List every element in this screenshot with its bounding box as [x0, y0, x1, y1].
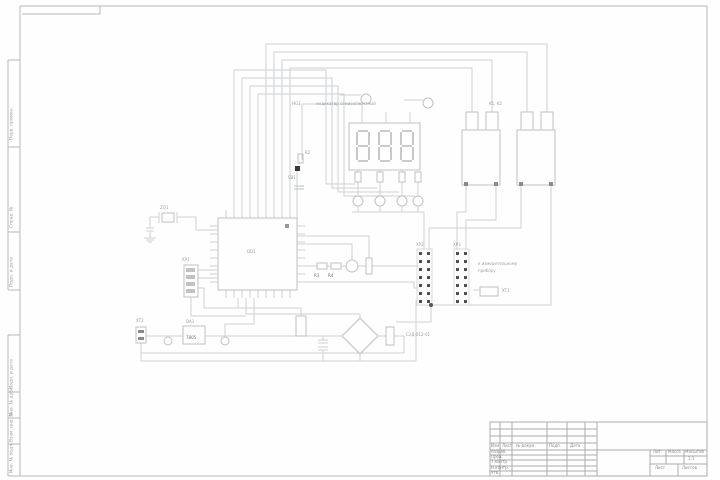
display-note: индикатор семисегментный	[316, 102, 376, 106]
capacitor	[164, 337, 172, 345]
resistor	[331, 263, 341, 269]
margin-label-vzam-inv: Взам. инв. №	[9, 412, 13, 442]
part-number-note: С2Д-012-01	[406, 333, 430, 337]
junction-dot	[429, 303, 433, 307]
relay-label: K1, K2	[489, 102, 502, 106]
display-designator: HG1	[292, 102, 301, 106]
terminal-xt2	[136, 327, 146, 343]
schematic-wires	[141, 44, 551, 361]
terminal-xt2-label: XT2	[136, 319, 144, 323]
transistor	[375, 196, 385, 206]
crystal-label: ZQ1	[160, 206, 168, 210]
resistor	[317, 263, 327, 269]
tb-col-dokum: № докум.	[516, 444, 536, 448]
transistor	[353, 196, 363, 206]
tb-sheets: Листов	[682, 466, 697, 470]
component-outlines	[136, 94, 555, 354]
resistor	[366, 258, 372, 274]
schematic-graphics	[0, 0, 720, 480]
display-digit-segments	[357, 131, 413, 161]
fuse	[296, 316, 306, 336]
button-mark	[295, 166, 300, 171]
margin-label-podp-data-2: Подп. и дата	[9, 359, 13, 389]
button-sb1-label: SB1	[288, 176, 296, 180]
note-to-device-1: к измерительному	[478, 262, 517, 266]
transistor	[413, 196, 423, 206]
margin-label-sprav-no: Справ. №	[9, 207, 13, 228]
note-to-device-2: прибору	[478, 269, 496, 273]
regulator-designator: DA1	[186, 320, 194, 324]
tb-massa: Масса	[668, 450, 681, 454]
tb-col-izm: Изм.	[491, 444, 500, 448]
tb-row-nkontr: Н.контр.	[491, 466, 509, 470]
margin-label-inv-podl: Инв. № подл.	[9, 443, 13, 473]
tb-col-list: Лист	[502, 444, 512, 448]
crystal	[162, 213, 174, 222]
tb-sheet: Лист	[655, 466, 665, 470]
tb-lit: Лит.	[653, 450, 662, 454]
tb-col-data: Дата	[570, 444, 580, 448]
resistor-r3-label: R3	[314, 274, 319, 278]
tb-row-prov: Пров.	[491, 455, 503, 459]
regulator-part: 7805	[186, 336, 196, 340]
tb-row-tkontr: Т.контр.	[491, 460, 508, 464]
resistor-r4-label: R4	[328, 274, 333, 278]
tb-row-utv: Утв.	[491, 471, 499, 475]
tb-col-podp: Подп.	[549, 444, 561, 448]
frame-lines	[8, 6, 707, 476]
tb-masshtab: Масштаб	[685, 450, 704, 454]
varistor	[386, 327, 394, 345]
tb-scale-value: 1:1	[688, 457, 694, 461]
terminal-xt1-label: XT1	[502, 289, 510, 293]
relay2-body	[517, 130, 555, 185]
relay1-body	[462, 130, 500, 185]
mcu-designator: DD1	[247, 250, 256, 254]
resistor-r2-label: R2	[305, 151, 310, 155]
drawing-sheet: DD1 HG1 индикатор семисегментный K1, K2 …	[0, 0, 720, 480]
mcu-pin1-mark	[285, 224, 289, 228]
tb-row-razrab: Разраб.	[491, 450, 507, 454]
connector-xp1-label: XP1	[182, 258, 190, 262]
transistor	[423, 98, 433, 108]
connector-xp3-label: XP3	[453, 243, 461, 247]
mcu-body	[218, 218, 297, 290]
transistor	[397, 196, 407, 206]
margin-label-podp-data-1: Подп. и дата	[9, 257, 13, 287]
terminal-xt1	[480, 287, 498, 296]
margin-label-perv-primen: Перв. примен.	[9, 107, 13, 140]
capacitor	[221, 337, 229, 345]
bridge-rectifier	[342, 318, 378, 354]
connector-xp2-label: XP2	[416, 243, 424, 247]
transistor	[346, 260, 358, 272]
